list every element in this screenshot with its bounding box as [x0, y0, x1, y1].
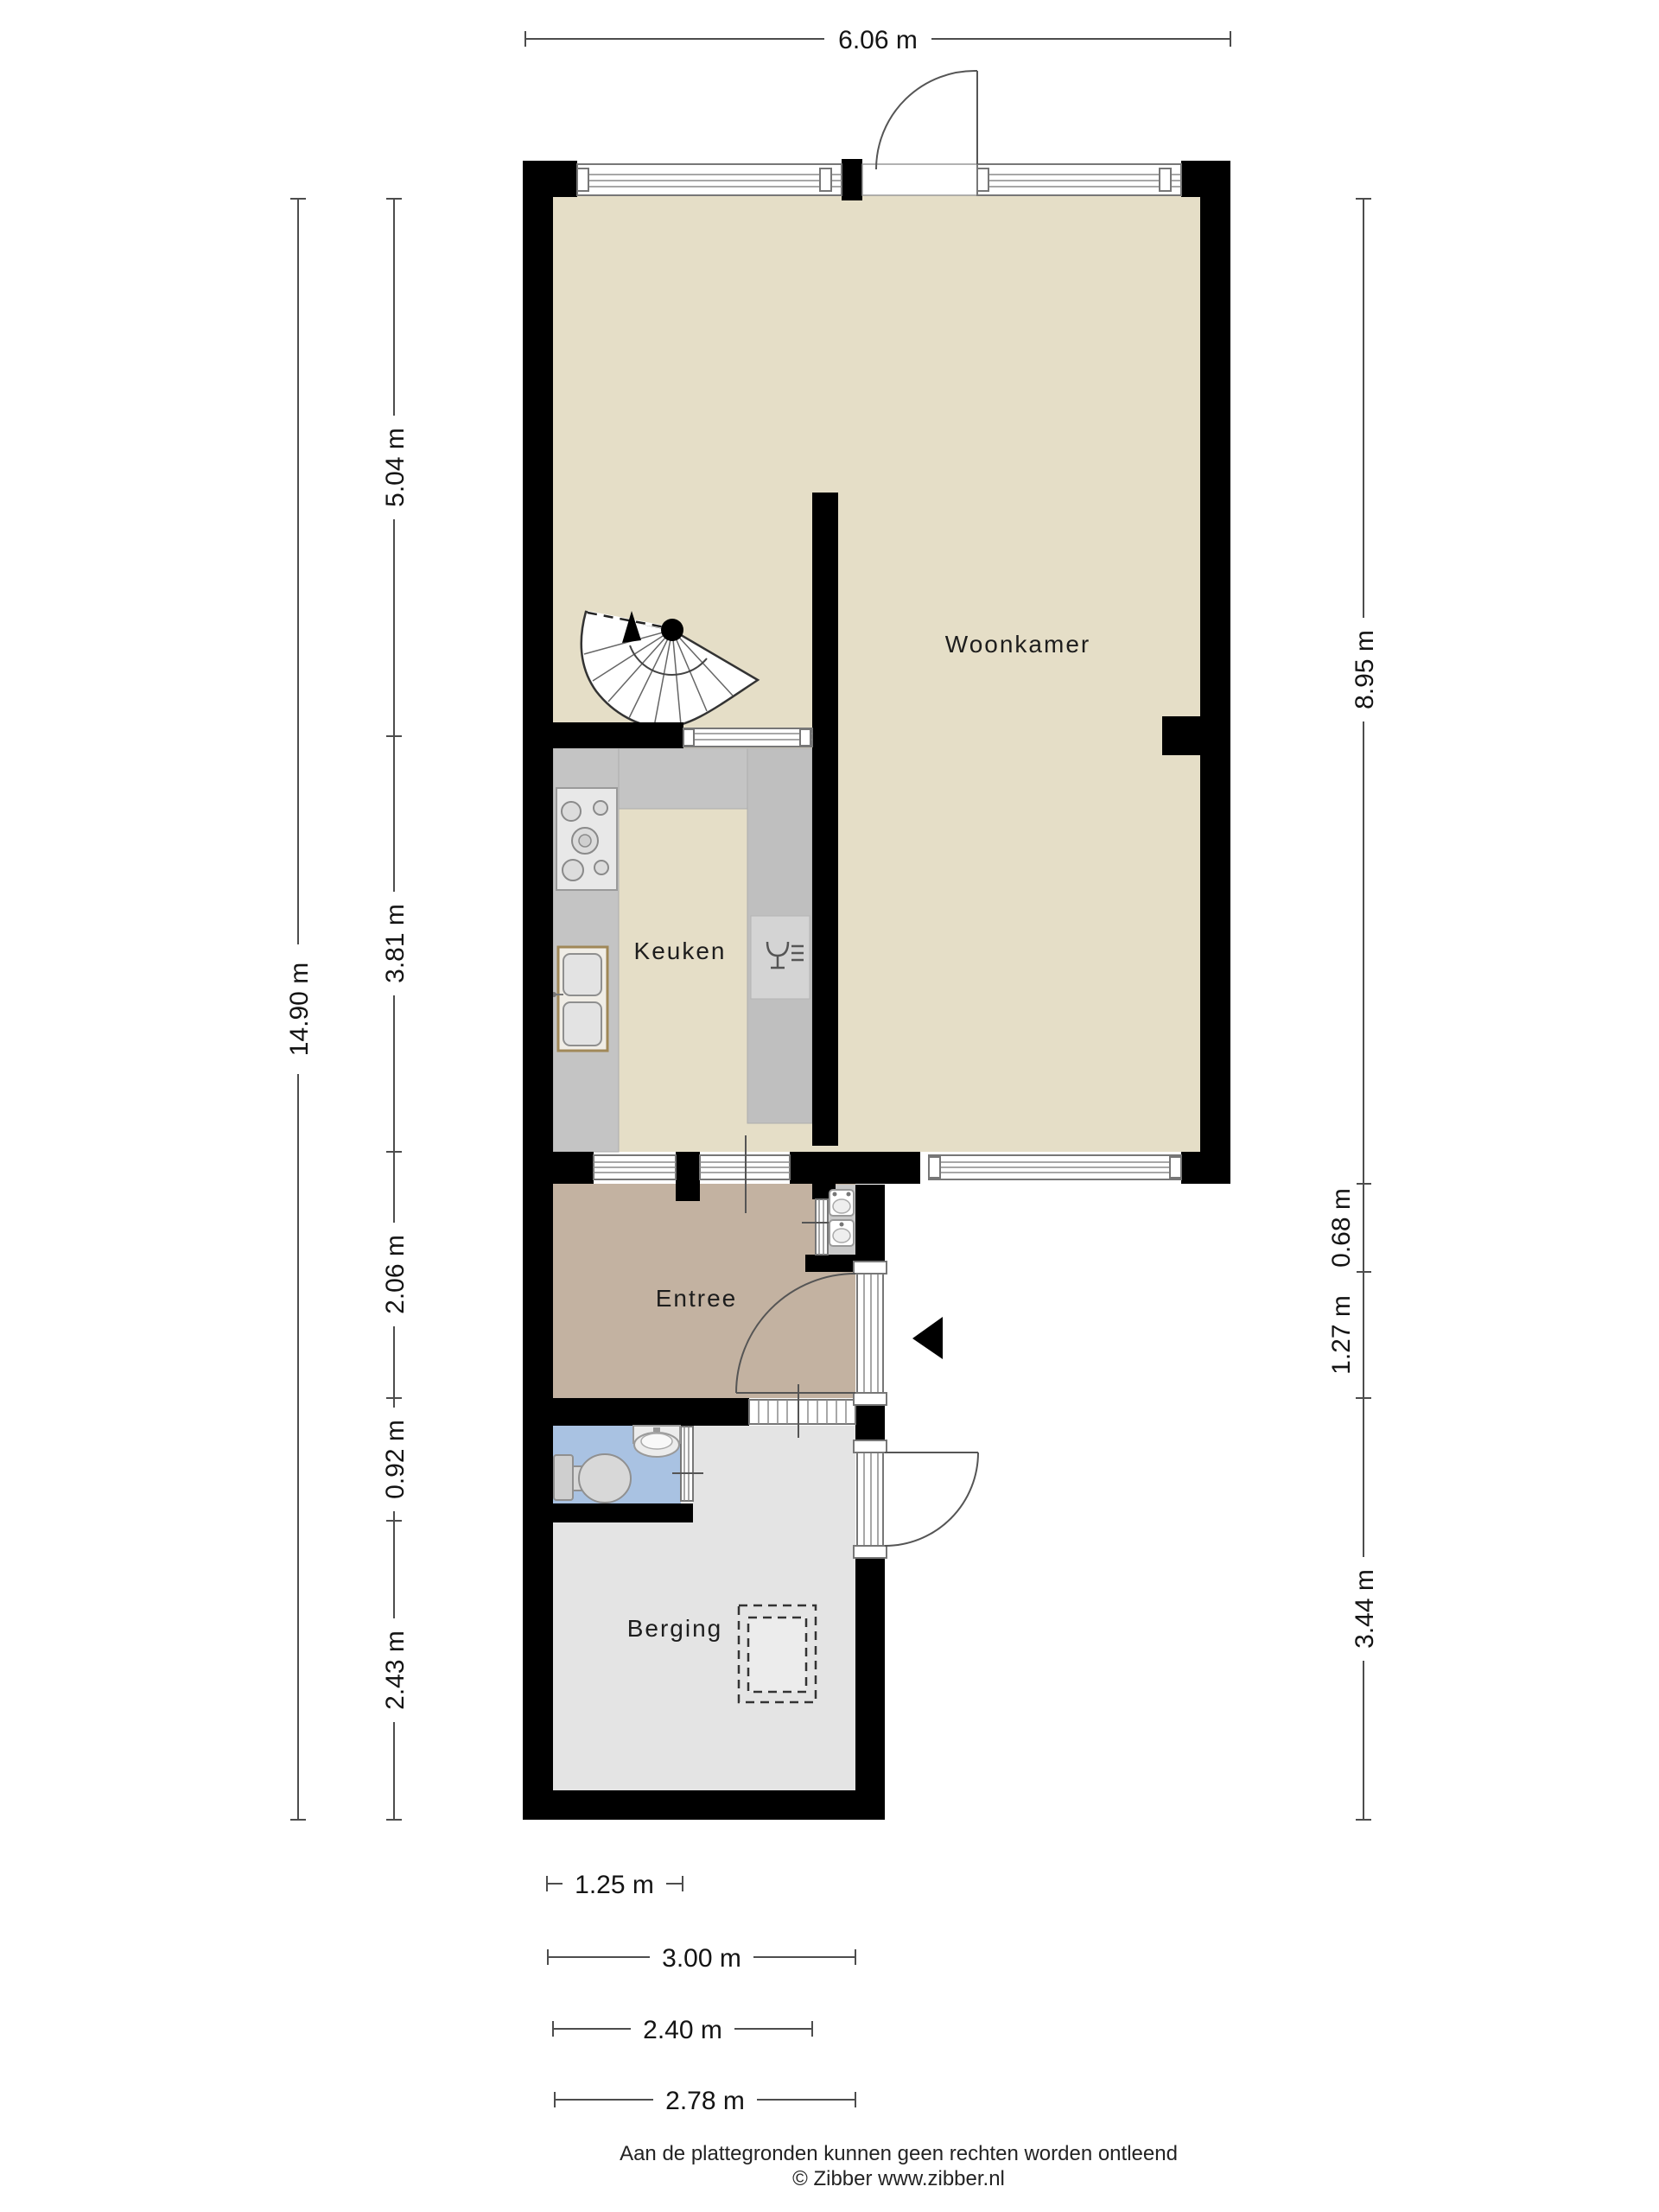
room-label-woonkamer: Woonkamer [945, 631, 1090, 658]
stairs-pole-icon [661, 619, 683, 641]
dim-label-right-3: 3.44 m [1351, 1569, 1379, 1649]
bottom-exterior-wall [523, 1790, 885, 1820]
dim-label-bottom-2: 2.40 m [643, 2016, 722, 2044]
sink-icon [551, 947, 607, 1051]
berging-door-swing [885, 1452, 978, 1546]
dim-label-left-3: 0.92 m [381, 1420, 410, 1499]
dim-label-bottom-0: 1.25 m [575, 1871, 654, 1899]
top-door-swing [876, 71, 977, 169]
dim-label-right-0: 8.95 m [1351, 630, 1379, 709]
wall-stub [1162, 716, 1202, 755]
floorplan-svg: Woonkamer Keuken Entree Berging 6.06 m 1… [0, 0, 1659, 2212]
alcove-door-frame [816, 1199, 828, 1255]
front-door-frame [854, 1262, 887, 1405]
dim-bottom: 1.25 m 3.00 m 2.40 m 2.78 m [547, 1867, 855, 2116]
floorplan-page: Woonkamer Keuken Entree Berging 6.06 m 1… [0, 0, 1659, 2212]
entree-berging-glazed-panel [749, 1400, 855, 1424]
dim-label-right-2: 1.27 m [1327, 1295, 1356, 1375]
attic-hatch-dashed [739, 1605, 816, 1702]
dim-label-left-0: 5.04 m [381, 428, 410, 507]
stove-icon [556, 788, 617, 890]
dim-top: 6.06 m [525, 22, 1230, 55]
toilet-door-frame [681, 1427, 693, 1501]
dim-label-left-2: 2.06 m [381, 1235, 410, 1314]
dim-label-left-1: 3.81 m [381, 904, 410, 983]
room-label-keuken: Keuken [634, 938, 727, 964]
berging-floor-left [553, 1521, 693, 1790]
room-label-entree: Entree [656, 1285, 738, 1312]
dishwasher-icon [751, 916, 810, 999]
dim-label-bottom-3: 2.78 m [665, 2087, 745, 2115]
dim-left-total: 14.90 m [282, 199, 315, 1820]
interior-wall [812, 493, 838, 1146]
toilet-washbasin-icon [633, 1426, 680, 1457]
dim-label-left-4: 2.43 m [381, 1630, 410, 1710]
footer: Aan de plattegronden kunnen geen rechten… [620, 2142, 1178, 2190]
berging-door-frame [854, 1440, 887, 1558]
footer-credit: © Zibber www.zibber.nl [792, 2167, 1005, 2190]
left-exterior-wall [523, 161, 553, 1820]
toilet-icon [554, 1454, 631, 1503]
dim-label-left-total: 14.90 m [285, 963, 314, 1056]
footer-disclaimer: Aan de plattegronden kunnen geen rechten… [620, 2142, 1178, 2165]
dim-right-segments: 8.95 m 0.68 m 1.27 m 3.44 m [1324, 199, 1380, 1820]
dim-label-top: 6.06 m [838, 26, 918, 54]
dim-label-right-1: 0.68 m [1327, 1188, 1356, 1268]
dim-left-segments: 5.04 m 3.81 m 2.06 m 0.92 m 2.43 m [378, 199, 410, 1820]
entrance-arrow-icon [912, 1317, 943, 1359]
room-label-berging: Berging [627, 1615, 723, 1642]
right-exterior-wall [1200, 161, 1230, 1184]
kitchen-passthrough-window [683, 728, 812, 747]
dim-label-bottom-1: 3.00 m [662, 1944, 741, 1973]
berging-floor [693, 1426, 855, 1790]
